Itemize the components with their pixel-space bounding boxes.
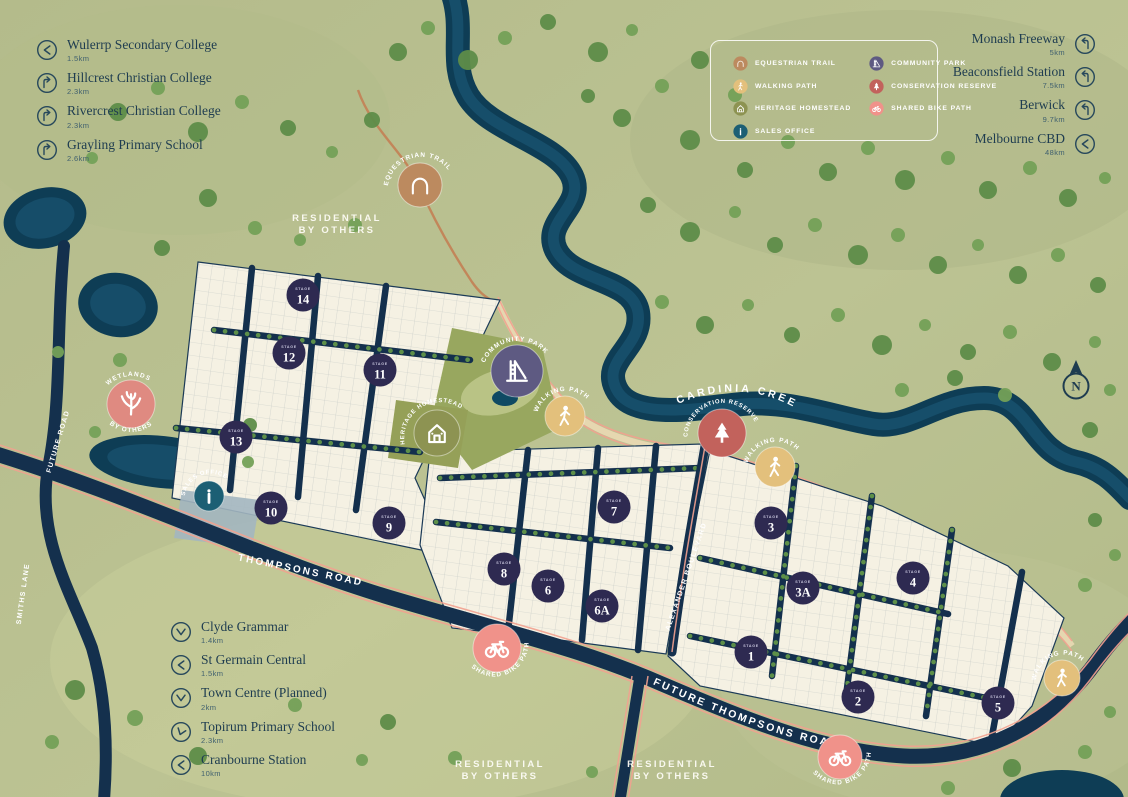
svg-text:BY OTHERS: BY OTHERS — [462, 771, 539, 782]
svg-text:12: 12 — [283, 351, 296, 365]
svg-text:STAGE: STAGE — [763, 515, 779, 519]
svg-text:9: 9 — [386, 521, 392, 535]
svg-text:3: 3 — [768, 521, 774, 535]
landmark-item: Monash Freeway5km — [953, 32, 1096, 57]
svg-text:BY OTHERS: BY OTHERS — [634, 771, 711, 782]
svg-text:N: N — [1071, 379, 1081, 394]
svg-text:STAGE: STAGE — [263, 500, 279, 504]
svg-text:STAGE: STAGE — [496, 561, 512, 565]
homestead-icon — [733, 101, 748, 116]
landmark-item: Town Centre (Planned)2km — [170, 686, 335, 711]
svg-text:STAGE: STAGE — [281, 345, 297, 349]
svg-text:STAGE: STAGE — [990, 695, 1006, 699]
stage-badge-9[interactable]: STAGE9 — [373, 507, 406, 540]
landmark-item: Topirum Primary School2.3km — [170, 720, 335, 745]
stage-badge-1[interactable]: STAGE1 — [735, 636, 768, 669]
svg-text:6: 6 — [545, 584, 551, 598]
svg-text:13: 13 — [230, 435, 243, 449]
svg-text:4: 4 — [910, 576, 917, 590]
direction-icon — [1074, 99, 1096, 121]
masterplan-map: THOMPSONS ROAD FUTURE THOMPSONS ROAD ALE… — [0, 0, 1128, 797]
stage-badge-3a[interactable]: STAGE3A — [787, 572, 820, 605]
stage-badge-13[interactable]: STAGE13 — [220, 421, 253, 454]
info-icon — [733, 124, 748, 139]
svg-text:STAGE: STAGE — [540, 578, 556, 582]
direction-icon — [170, 654, 192, 676]
legend-item-conservation-reserve: CONSERVATION RESERVE — [869, 79, 997, 94]
svg-text:7: 7 — [611, 505, 617, 519]
landmark-list-bottom-left: Clyde Grammar1.4km St Germain Central1.5… — [170, 620, 335, 786]
svg-text:1: 1 — [748, 650, 754, 664]
direction-icon — [170, 721, 192, 743]
svg-text:14: 14 — [297, 293, 310, 307]
direction-icon — [170, 754, 192, 776]
landmark-item: St Germain Central1.5km — [170, 653, 335, 678]
landmark-item: Wulerrp Secondary College1.5km — [36, 38, 221, 63]
legend-item-equestrian-trail: EQUESTRIAN TRAIL — [733, 56, 851, 71]
direction-icon — [170, 687, 192, 709]
landmark-item: Clyde Grammar1.4km — [170, 620, 335, 645]
legend-item-shared-bike-path: SHARED BIKE PATH — [869, 101, 997, 116]
stage-badge-11[interactable]: STAGE11 — [364, 354, 397, 387]
landmark-list-top-left: Wulerrp Secondary College1.5km Hillcrest… — [36, 38, 221, 171]
direction-icon — [1074, 66, 1096, 88]
legend: EQUESTRIAN TRAIL WALKING PATH HERITAGE H… — [710, 40, 938, 141]
stage-badge-8[interactable]: STAGE8 — [488, 553, 521, 586]
svg-text:5: 5 — [995, 701, 1001, 715]
walker-icon — [733, 79, 748, 94]
svg-text:STAGE: STAGE — [850, 689, 866, 693]
landmark-item: Hillcrest Christian College2.3km — [36, 71, 221, 96]
svg-text:STAGE: STAGE — [594, 598, 610, 602]
horseshoe-icon — [733, 56, 748, 71]
legend-item-sales-office: SALES OFFICE — [733, 124, 851, 139]
svg-text:2: 2 — [855, 695, 861, 709]
playground-slide-icon — [869, 56, 884, 71]
svg-text:STAGE: STAGE — [795, 580, 811, 584]
svg-text:STAGE: STAGE — [228, 429, 244, 433]
svg-text:STAGE: STAGE — [905, 570, 921, 574]
svg-text:STAGE: STAGE — [606, 499, 622, 503]
stage-badge-7[interactable]: STAGE7 — [598, 491, 631, 524]
stage-badge-2[interactable]: STAGE2 — [842, 681, 875, 714]
residential-by-others-label-south1: RESIDENTIAL — [455, 759, 545, 770]
marker-wetlands[interactable]: WETLANDS BY OTHERS — [105, 371, 155, 434]
direction-icon — [36, 72, 58, 94]
direction-icon — [36, 39, 58, 61]
svg-text:STAGE: STAGE — [295, 287, 311, 291]
landmark-item: Rivercrest Christian College2.3km — [36, 104, 221, 129]
direction-icon — [170, 621, 192, 643]
stage-badge-4[interactable]: STAGE4 — [897, 562, 930, 595]
stage-badge-6[interactable]: STAGE6 — [532, 570, 565, 603]
stage-badge-10[interactable]: STAGE10 — [255, 492, 288, 525]
direction-icon — [36, 105, 58, 127]
legend-item-heritage-homestead: HERITAGE HOMESTEAD — [733, 101, 851, 116]
svg-text:STAGE: STAGE — [381, 515, 397, 519]
svg-text:8: 8 — [501, 567, 507, 581]
svg-text:STAGE: STAGE — [372, 362, 388, 366]
direction-icon — [36, 139, 58, 161]
legend-item-walking-path: WALKING PATH — [733, 79, 851, 94]
pine-tree-icon — [869, 79, 884, 94]
stage-badge-3[interactable]: STAGE3 — [755, 507, 788, 540]
legend-item-community-park: COMMUNITY PARK — [869, 56, 997, 71]
landmark-item: Cranbourne Station10km — [170, 753, 335, 778]
bicycle-icon — [869, 101, 884, 116]
svg-text:6A: 6A — [594, 604, 609, 618]
direction-icon — [1074, 133, 1096, 155]
svg-text:10: 10 — [265, 506, 278, 520]
stage-badge-12[interactable]: STAGE12 — [273, 337, 306, 370]
stage-badge-5[interactable]: STAGE5 — [982, 687, 1015, 720]
svg-text:STAGE: STAGE — [743, 644, 759, 648]
direction-icon — [1074, 33, 1096, 55]
svg-text:BY OTHERS: BY OTHERS — [299, 225, 376, 236]
svg-text:3A: 3A — [795, 586, 810, 600]
info-icon — [207, 489, 210, 502]
landmark-item: Grayling Primary School2.6km — [36, 138, 221, 163]
svg-text:11: 11 — [374, 368, 386, 382]
stage-badge-6a[interactable]: STAGE6A — [586, 590, 619, 623]
stage-badge-14[interactable]: STAGE14 — [287, 279, 320, 312]
residential-by-others-label-south2: RESIDENTIAL — [627, 759, 717, 770]
residential-by-others-label-north: RESIDENTIAL — [292, 213, 382, 224]
